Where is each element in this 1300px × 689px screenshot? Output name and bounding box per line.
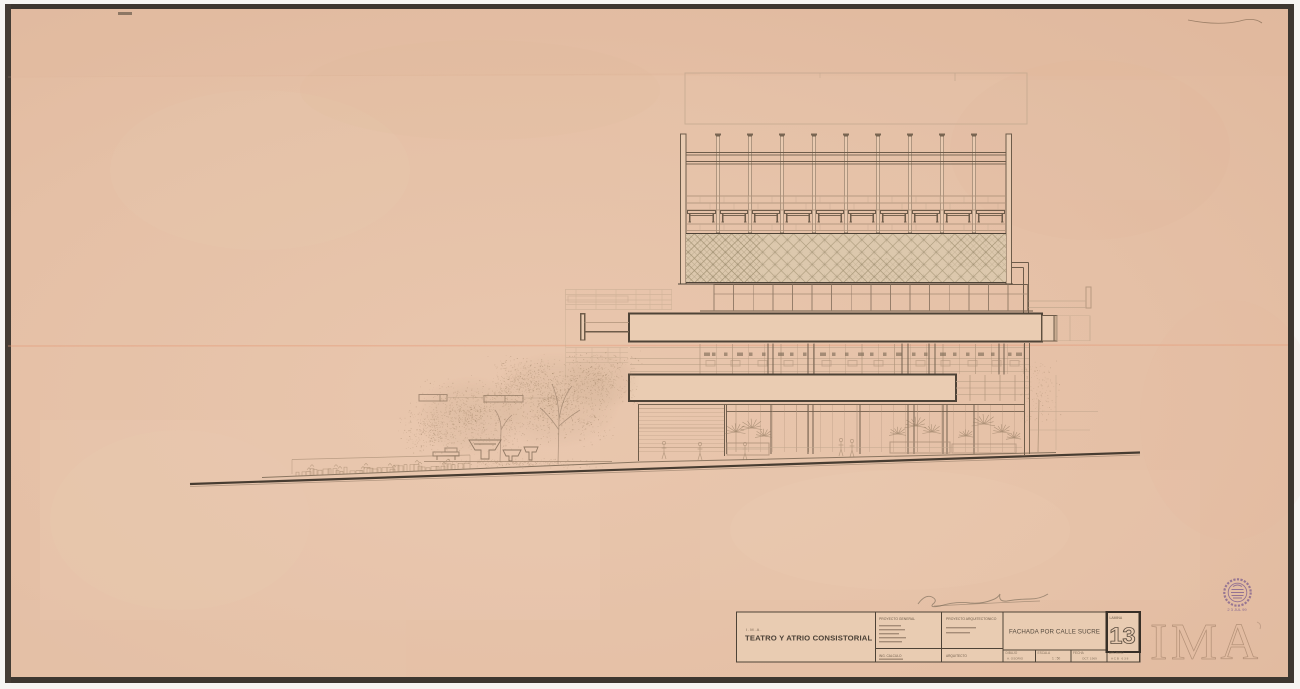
svg-text:A C B 6 3 8: A C B 6 3 8 — [1111, 657, 1129, 661]
svg-text:IMA: IMA — [1150, 614, 1262, 671]
svg-text:LAMINA: LAMINA — [1110, 616, 1123, 620]
svg-text:I.M.A.: I.M.A. — [746, 627, 762, 632]
svg-text:FACHADA POR CALLE SUCRE: FACHADA POR CALLE SUCRE — [1009, 629, 1100, 636]
svg-text:PROYECTO GENERAL: PROYECTO GENERAL — [879, 617, 915, 621]
svg-text:ESCALA: ESCALA — [1038, 651, 1051, 655]
svg-text:13: 13 — [1109, 623, 1135, 649]
svg-text:A. OSORIO: A. OSORIO — [1007, 657, 1024, 661]
svg-text:1 : 50: 1 : 50 — [1052, 657, 1060, 661]
svg-text:ARCHIVO: ARCHIVO — [1109, 651, 1124, 655]
svg-text:TEATRO Y ATRIO CONSISTORIAL: TEATRO Y ATRIO CONSISTORIAL — [745, 634, 872, 643]
svg-text:ARQUITECTO: ARQUITECTO — [946, 654, 967, 658]
svg-text:PROYECTO ARQUITECTONICO: PROYECTO ARQUITECTONICO — [946, 617, 997, 621]
svg-text:DIBUJO: DIBUJO — [1006, 651, 1018, 655]
svg-text:2 3 JUL 99: 2 3 JUL 99 — [1227, 607, 1247, 612]
svg-text:FECHA: FECHA — [1073, 651, 1085, 655]
svg-text:OCT. 1969: OCT. 1969 — [1082, 657, 1097, 661]
svg-text:ING. CALCULO: ING. CALCULO — [879, 654, 902, 658]
